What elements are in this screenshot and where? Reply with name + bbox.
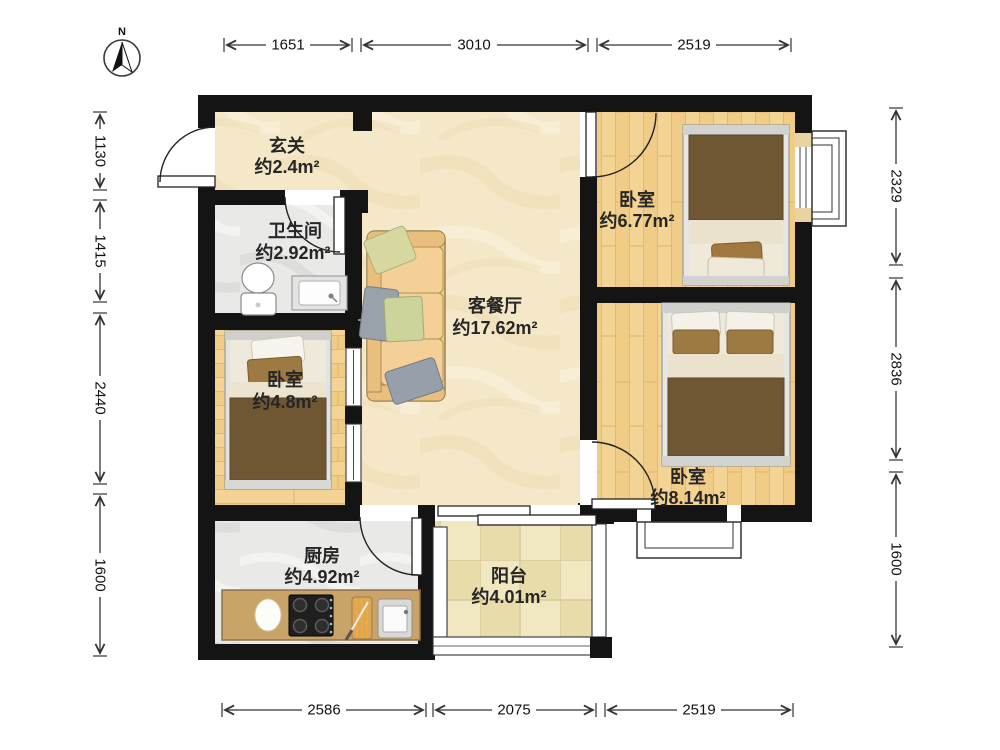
svg-text:2586: 2586 [307, 702, 340, 719]
dimension-left-2440: 2440 [92, 313, 109, 484]
svg-text:约17.62m²: 约17.62m² [452, 317, 537, 338]
svg-text:卫生间: 卫生间 [268, 220, 322, 241]
svg-text:2440: 2440 [92, 381, 109, 414]
svg-text:约2.92m²: 约2.92m² [255, 242, 330, 263]
dimension-right-2836: 2836 [888, 278, 905, 460]
bed-double-bottom-right [662, 303, 790, 466]
dimensions-bottom: 2586 2075 2519 [222, 702, 793, 719]
bedroom-bottom-right-door-opening [580, 440, 597, 505]
svg-text:约4.92m²: 约4.92m² [284, 566, 359, 587]
svg-text:客餐厅: 客餐厅 [468, 295, 522, 316]
bowl [255, 599, 281, 631]
dimension-right-2329: 2329 [888, 108, 905, 265]
dimension-bottom-2519: 2519 [605, 702, 793, 719]
svg-text:约4.8m²: 约4.8m² [252, 391, 317, 412]
stove [289, 595, 333, 636]
svg-text:卧室: 卧室 [619, 189, 655, 210]
svg-text:2519: 2519 [682, 702, 715, 719]
bay-window-top-right [795, 131, 846, 226]
svg-text:阳台: 阳台 [491, 565, 527, 586]
svg-text:2519: 2519 [677, 37, 710, 54]
svg-text:1600: 1600 [888, 542, 905, 575]
svg-text:约2.4m²: 约2.4m² [254, 156, 319, 177]
svg-text:卧室: 卧室 [267, 369, 303, 390]
dimension-bottom-2586: 2586 [222, 702, 426, 719]
svg-text:卧室: 卧室 [670, 466, 706, 487]
svg-text:2836: 2836 [888, 352, 905, 385]
kitchen-counter [222, 590, 420, 640]
dimension-top-2519: 2519 [597, 37, 791, 54]
floor-plan-page: 玄关 约2.4m² 卫生间 约2.92m² 客餐厅 约17.62m² 卧室 约6… [0, 0, 1000, 750]
svg-text:约6.77m²: 约6.77m² [599, 210, 674, 231]
svg-text:厨房: 厨房 [304, 545, 340, 566]
dimension-left-1600: 1600 [92, 494, 109, 656]
svg-text:玄关: 玄关 [269, 135, 305, 156]
svg-text:约4.01m²: 约4.01m² [471, 586, 546, 607]
bathroom-sink [292, 276, 347, 310]
dimension-right-1600: 1600 [888, 472, 905, 647]
svg-text:2329: 2329 [888, 169, 905, 202]
svg-text:3010: 3010 [457, 37, 490, 54]
pillow-green-center [384, 296, 424, 342]
svg-text:1130: 1130 [92, 135, 109, 167]
floor-plan-svg: 玄关 约2.4m² 卫生间 约2.92m² 客餐厅 约17.62m² 卧室 约6… [0, 0, 1000, 750]
dimension-bottom-2075: 2075 [433, 702, 596, 719]
svg-text:1415: 1415 [92, 234, 109, 267]
svg-text:N: N [118, 26, 126, 38]
kitchen-sink [378, 599, 412, 638]
dimension-left-1415: 1415 [92, 200, 109, 302]
svg-text:1651: 1651 [271, 37, 304, 54]
dimensions-top: 1651 3010 2519 [224, 37, 791, 54]
dimensions-left: 1130 1415 2440 1600 [92, 112, 109, 656]
kitchen-door-opening [360, 505, 418, 521]
sofa [358, 225, 445, 405]
dimension-top-3010: 3010 [361, 37, 588, 54]
bathroom-door-opening [285, 190, 340, 205]
svg-text:约8.14m²: 约8.14m² [650, 487, 725, 508]
dimensions-right: 2329 2836 1600 [888, 108, 905, 647]
svg-text:2075: 2075 [497, 702, 530, 719]
entry-door-opening [198, 128, 215, 182]
bed-single-top-right [683, 125, 789, 285]
dimension-top-1651: 1651 [224, 37, 352, 54]
dimension-left-1130: 1130 [92, 112, 109, 190]
north-compass-icon: N [104, 26, 140, 76]
svg-text:1600: 1600 [92, 558, 109, 591]
